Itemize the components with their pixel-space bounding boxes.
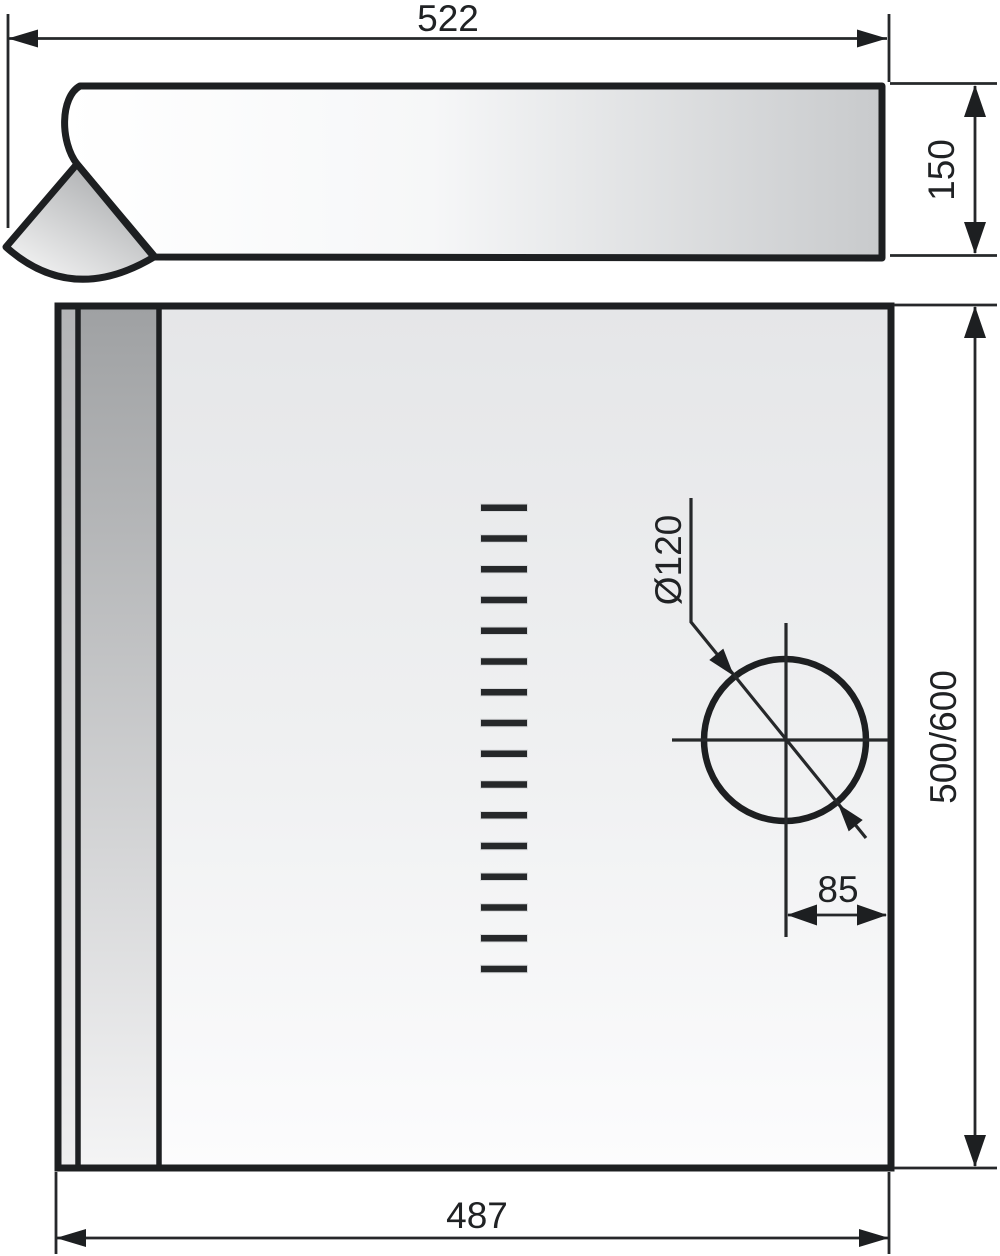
dim-mount-height: 500/600: [894, 305, 997, 1168]
vent-slot: [481, 658, 528, 666]
dim-arrow-left: [8, 30, 38, 48]
vent-slot: [481, 904, 528, 912]
vent-slot: [481, 596, 528, 604]
dim-label-hole-diameter: Ø120: [648, 515, 689, 606]
vent-slot: [481, 812, 528, 820]
front-panel: [58, 306, 891, 1168]
side-view: [6, 86, 882, 279]
dim-label-side-height: 150: [921, 139, 962, 201]
vent-slot: [481, 566, 528, 574]
dim-label-hole-offset: 85: [817, 869, 858, 910]
drawing-canvas: 522 150 Ø120 85: [0, 0, 1000, 1256]
vent-slot: [481, 627, 528, 635]
vent-slot: [481, 719, 528, 727]
vent-slot: [481, 689, 528, 697]
vent-slot: [481, 535, 528, 543]
dim-label-mount-height: 500/600: [923, 670, 964, 804]
installation-drawing: 522 150 Ø120 85: [0, 0, 1000, 1256]
dim-side-height: 150: [890, 84, 997, 256]
vent-slot: [481, 965, 528, 973]
vent-slot: [481, 935, 528, 943]
dim-arrow-down: [964, 222, 986, 254]
dim-bottom-width: 487: [56, 1172, 889, 1254]
dim-arrow-up: [964, 85, 986, 117]
vent-slot: [481, 750, 528, 758]
dim-arrow-right: [857, 30, 887, 48]
vent-slot: [481, 842, 528, 850]
dim-arrow-right: [859, 1229, 889, 1247]
dim-label-top-width: 522: [417, 0, 479, 39]
vent-slot: [481, 781, 528, 789]
vent-slot: [481, 873, 528, 881]
front-view: [58, 306, 891, 1168]
dim-arrow-left: [56, 1229, 86, 1247]
dim-arrow-down: [964, 1135, 986, 1167]
front-panel-strip-narrow: [62, 310, 76, 1165]
dim-label-bottom-width: 487: [446, 1195, 508, 1236]
side-view-body: [65, 86, 882, 258]
dim-arrow-up: [964, 306, 986, 338]
vent-slot: [481, 504, 528, 512]
front-panel-strip-wide: [76, 310, 157, 1165]
